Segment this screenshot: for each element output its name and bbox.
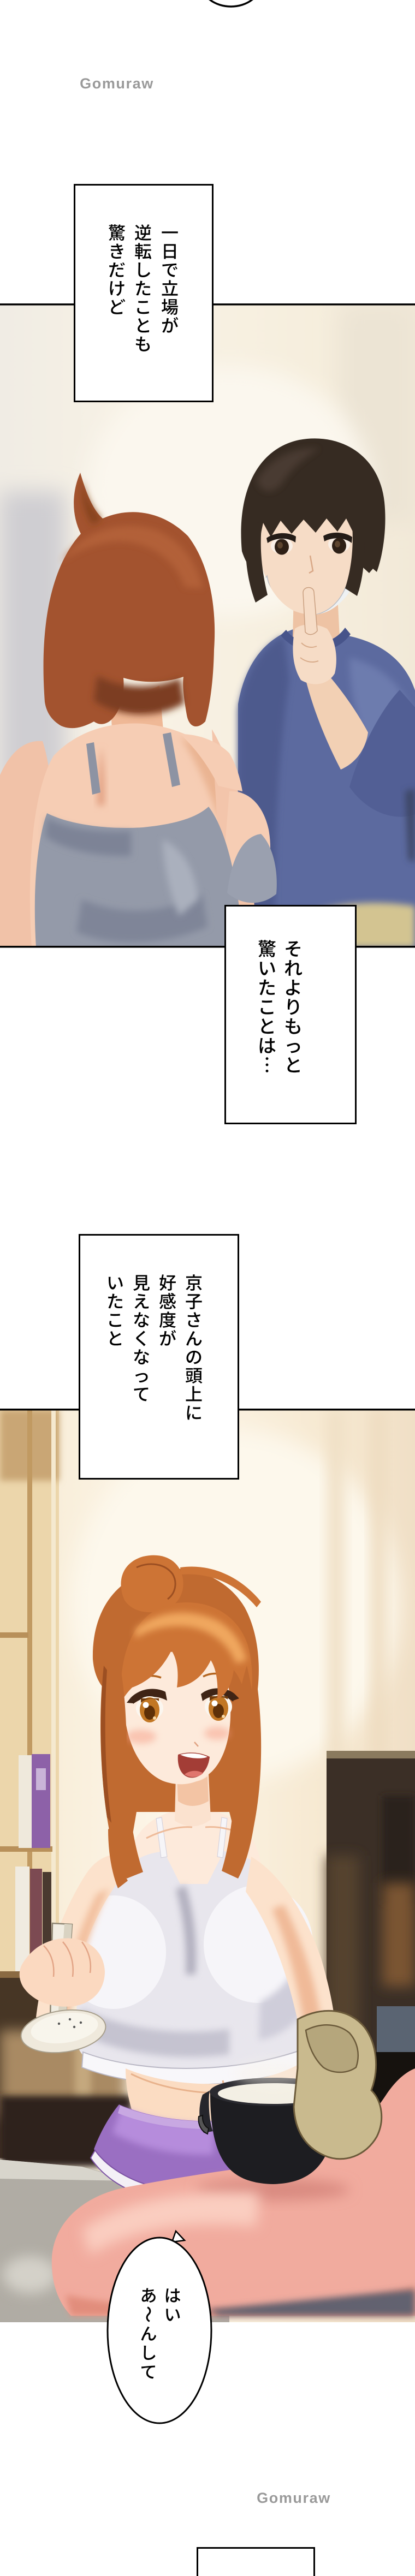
svg-text:Gomuraw: Gomuraw [80,75,154,92]
svg-text:Gomuraw: Gomuraw [257,2490,331,2506]
